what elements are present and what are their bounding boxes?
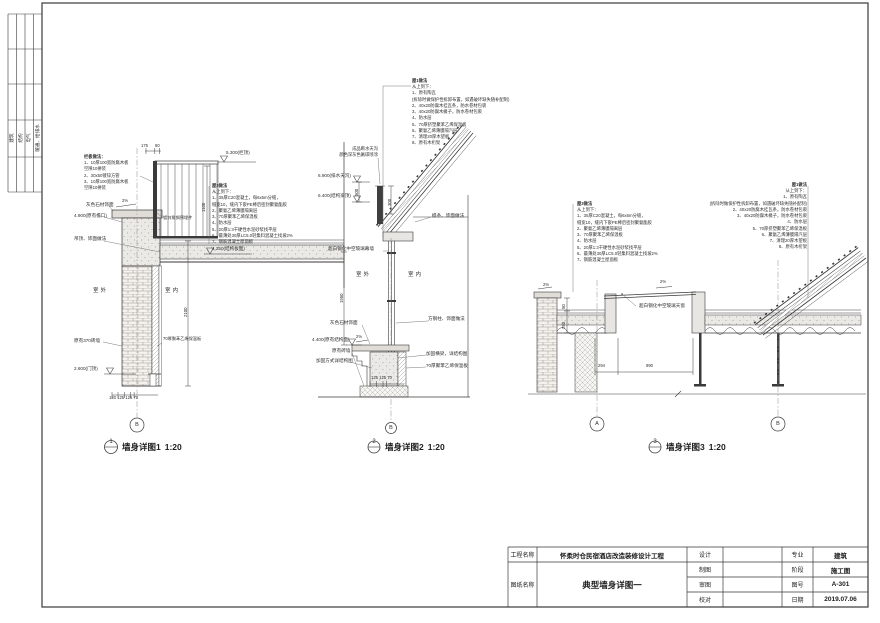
grid-bubble-b-d1: B — [130, 422, 144, 428]
label-skylight: 超白钢化中空玻璃天窗 — [639, 303, 685, 308]
titleblock-major-label: 专业 — [782, 547, 813, 562]
titleblock-number-value: A-301 — [813, 577, 868, 592]
slope-2pct-skylight: 2% — [660, 280, 666, 285]
elevation-existing-structure: 4.400(原有结构面) — [312, 337, 350, 342]
roof1-notes-d3: 屋1做法 从上到下： 1、原有陶瓦 (拆除时做保护性拆卸布置，如遇破坏缺失随补配… — [677, 182, 807, 250]
sign-strip-label-elec: 电气 — [25, 120, 33, 156]
dim-990: 990 — [646, 364, 653, 369]
titleblock-date-value: 2019.07.06 — [813, 592, 868, 607]
sign-strip-label-struct: 结构 — [17, 120, 25, 156]
titleblock-sheet-label: 图纸名称 — [508, 562, 537, 607]
label-reinforce-beam: 加固横梁，详结构图 — [426, 351, 467, 356]
titleblock-major-value: 建筑 — [813, 547, 868, 562]
label-stone-facing: 灰色石材饰面 — [86, 202, 114, 207]
detail-title-text: 墙身详图1 — [122, 442, 161, 452]
titleblock-number-label: 图号 — [782, 577, 813, 592]
elevation-gutter: 6.900(排水天沟) — [318, 173, 351, 178]
dim-294: 294 — [598, 364, 605, 369]
label-purlin-finish: 檩条、饰面做法 — [432, 213, 464, 218]
titleblock-sheet-name: 典型墙身详图一 — [537, 562, 687, 607]
detail-scale: 1:20 — [428, 442, 445, 452]
label-embed-plate: 镀锌角钢预埋件 — [163, 216, 192, 221]
titleblock-project-label: 工程名称 — [508, 547, 537, 562]
label-gutter-color: 颜色深灰色氟碳喷涂 — [316, 152, 378, 158]
titleblock-proof-label: 校对 — [687, 592, 723, 607]
roof1-notes-d2: 屋1做法 从上到下： 1、原有陶瓦 (拆除时做保护性拆卸布置，如遇破坏缺失随补配… — [412, 78, 509, 146]
detail-number-1: 1 — [105, 439, 118, 445]
label-existing-eave: 4.900(原有檐口) — [74, 213, 107, 218]
roof3-notes-d1: 屋3做法 从上到下： 1、35厚C20混凝土，每6x6m分缝， 缝宽10，缝内下… — [212, 183, 293, 245]
titleblock-project-name: 怀柔时仓民宿酒店改造装修设计工程 — [537, 547, 687, 562]
sign-strip-label-arch: 建筑 — [8, 120, 16, 156]
detail-number-2: 2 — [368, 439, 381, 445]
detail-scale: 1:20 — [165, 442, 182, 452]
titleblock-draft-label: 制图 — [687, 562, 723, 577]
elevation-slab: 4.250(结构板面) — [212, 246, 245, 251]
note-line: 8、原有木桁架 — [412, 140, 509, 146]
elevation-beam-top: 6.400(结构梁顶) — [318, 193, 351, 198]
label-indoor: 室内 — [408, 272, 423, 278]
railing-notes: 栏板做法： 1、10厚100宽防腐木板 空隙10拼装 2、30x50镀锌方管 3… — [84, 154, 128, 191]
label-insulation: 70厚聚苯乙烯保温板 — [163, 337, 201, 342]
titleblock-stage-label: 阶段 — [782, 562, 813, 577]
dim-500: 500 — [354, 189, 359, 196]
label-indoor: 室内 — [165, 288, 180, 294]
slope-2pct-left: 2% — [543, 283, 549, 288]
label-insulation: 70厚聚苯乙烯保温板 — [426, 363, 468, 368]
dim-175: 175 — [141, 144, 148, 149]
note-line: (拆除时做保护性拆卸布置，如遇破坏缺失随补配制) — [412, 97, 509, 103]
note-line: 8、原有木桁架 — [677, 244, 807, 250]
dim-1950: 1950 — [339, 293, 344, 303]
label-outdoor: 室外 — [356, 272, 371, 278]
label-steel-column: 方钢柱、饰面做法 — [428, 316, 465, 321]
dim-250: 250 — [561, 322, 566, 329]
titleblock-review-label: 审图 — [687, 577, 723, 592]
label-reinforcement: 加固方式详结构图 — [316, 358, 353, 363]
sign-strip-label-hvac: 暖通、给排水 — [34, 120, 42, 156]
dim-bottom-d1: 120 125 125 70 — [109, 396, 138, 401]
dim-2100: 2100 — [183, 307, 188, 317]
dim-50: 50 — [561, 304, 566, 309]
dim-bottom-d2: 125 125 70 — [371, 376, 392, 381]
detail-title-text: 墙身详图2 — [385, 442, 424, 452]
detail-title-2: 墙身详图21:20 — [385, 441, 445, 453]
grid-bubble-b-d2: B — [384, 425, 398, 431]
detail-number-3: 3 — [649, 439, 662, 445]
elevation-railing-top: 5.300(栏顶) — [226, 150, 250, 155]
slope-2pct-d2: 2% — [356, 335, 362, 340]
titleblock-stage-value: 施工图 — [813, 562, 868, 577]
detail-title-1: 墙身详图11:20 — [122, 441, 182, 453]
label-stone-facing: 灰色石材饰面 — [330, 320, 358, 325]
note-line: 空隙10拼装 — [84, 185, 128, 191]
titleblock-date-label: 日期 — [782, 592, 813, 607]
drawing-sheet: 建筑 结构 电气 暖通、给排水 栏板做法： 1、10厚100宽防腐木板 空隙10… — [0, 0, 880, 623]
detail-scale: 1:20 — [709, 442, 726, 452]
note-line: 缝宽10，缝内下嵌PE棒后密封聚氨酯胶 — [212, 202, 293, 208]
label-curtain-wall: 超白钢化中空玻璃幕墙 — [328, 246, 374, 251]
label-existing-brick: 原有砖墙 — [332, 348, 350, 353]
detail-title-3: 墙身详图31:20 — [666, 441, 726, 453]
titleblock-design-label: 设计 — [687, 547, 723, 562]
roof3-notes-d3: 屋3做法 从上到下： 1、35厚C20混凝土，每6x6m分缝， 缝宽10，缝内下… — [577, 201, 658, 263]
grid-bubble-a: A — [590, 421, 604, 427]
gutter-label: 成品断水天沟 颜色深灰色氟碳喷涂 — [316, 146, 378, 158]
label-ceiling-finish: 吊顶、饰面做法 — [74, 236, 106, 241]
note-line: 7、钢筋混凝土屋面板 — [212, 239, 293, 245]
dim-1100: 1100 — [201, 203, 206, 212]
detail-title-text: 墙身详图3 — [666, 442, 705, 452]
grid-bubble-b-d3: B — [771, 421, 785, 427]
dim-300: 300 — [387, 199, 392, 206]
label-existing-brick-wall: 原有370砖墙 — [74, 338, 100, 343]
note-line: 7、钢筋混凝土屋面板 — [577, 257, 658, 263]
dim-90: 90 — [155, 144, 160, 149]
slope-2pct-d1: 2% — [122, 199, 128, 204]
elevation-door-head: 2.600(门顶) — [74, 366, 98, 371]
label-outdoor: 室外 — [93, 288, 108, 294]
note-line: 缝宽10，缝内下嵌PE棒后密封聚氨酯胶 — [577, 220, 658, 226]
